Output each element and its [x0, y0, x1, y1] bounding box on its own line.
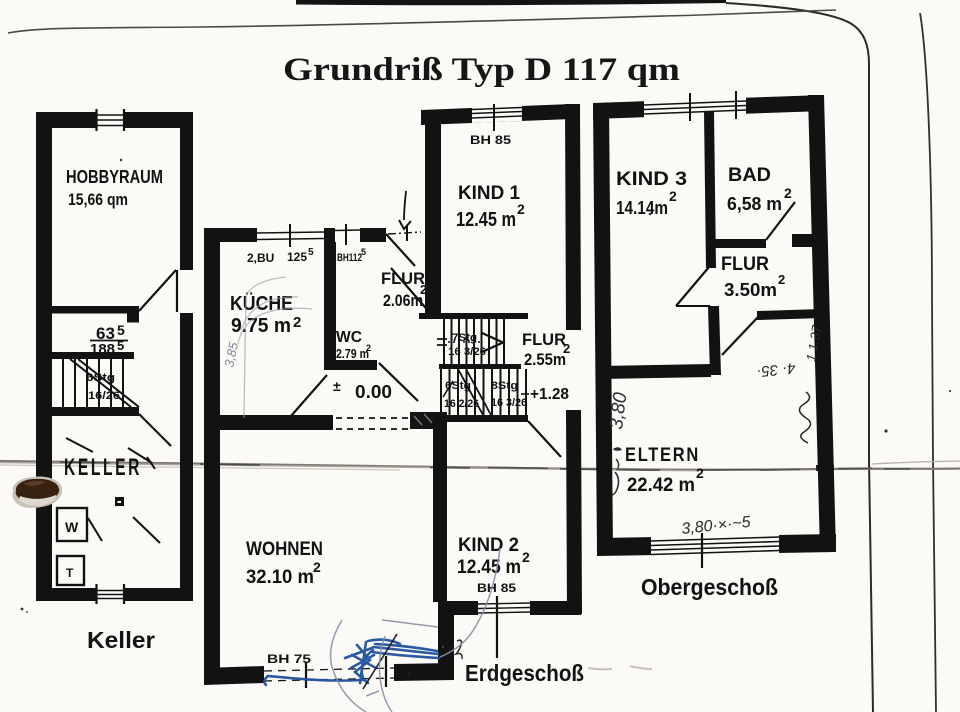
svg-text:HOBBYRAUM: HOBBYRAUM: [66, 167, 163, 187]
svg-text:BH 85: BH 85: [477, 581, 516, 595]
svg-text:8Stg: 8Stg: [491, 380, 518, 392]
svg-text:BH 75: BH 75: [267, 652, 311, 666]
svg-text:12.45 m: 12.45 m: [457, 557, 521, 578]
svg-text:KIND 3: KIND 3: [616, 169, 687, 190]
svg-text:16 2/26: 16 2/26: [444, 398, 479, 410]
svg-text:WOHNEN: WOHNEN: [246, 539, 323, 560]
svg-text:16/26: 16/26: [88, 390, 120, 402]
svg-text:5: 5: [117, 338, 124, 353]
svg-text:+1.28: +1.28: [530, 386, 569, 403]
svg-text:±: ±: [333, 378, 341, 394]
svg-text:2.79 m: 2.79 m: [336, 346, 369, 361]
svg-text:2: 2: [293, 314, 301, 331]
svg-text:2.55m: 2.55m: [524, 350, 566, 369]
svg-text:FLUR: FLUR: [381, 269, 425, 288]
svg-text:Obergeschoß: Obergeschoß: [641, 574, 778, 600]
svg-text:2: 2: [784, 185, 792, 201]
svg-text:6Stg: 6Stg: [445, 380, 471, 392]
svg-text:2: 2: [669, 188, 677, 204]
svg-text:KÜCHE: KÜCHE: [230, 292, 293, 315]
svg-text:2: 2: [522, 549, 530, 565]
svg-text:KIND 2: KIND 2: [458, 535, 519, 556]
svg-text:32.10 m: 32.10 m: [246, 567, 314, 588]
svg-text:5: 5: [361, 247, 366, 257]
svg-text:Grundriß Typ D 117 qm: Grundriß Typ D 117 qm: [283, 52, 680, 88]
svg-text:KIND 1: KIND 1: [458, 183, 520, 204]
svg-text:16 3/26: 16 3/26: [448, 346, 486, 358]
svg-text:16 3/26: 16 3/26: [491, 397, 527, 409]
svg-text:5: 5: [308, 247, 314, 258]
svg-text:T: T: [66, 566, 74, 580]
svg-text:3.50m: 3.50m: [724, 280, 777, 300]
svg-text:2: 2: [366, 343, 371, 353]
svg-text:15,66 qm: 15,66 qm: [68, 190, 128, 209]
svg-text:2: 2: [313, 559, 321, 575]
svg-text:2: 2: [517, 201, 525, 217]
svg-text:W: W: [65, 519, 79, 535]
svg-text:6,58 m: 6,58 m: [727, 194, 782, 214]
svg-text:WC: WC: [336, 329, 362, 346]
svg-text:14.14m: 14.14m: [616, 198, 668, 218]
svg-text:5: 5: [117, 322, 125, 338]
svg-text:Keller: Keller: [87, 627, 155, 653]
svg-text:ELTERN: ELTERN: [625, 445, 700, 466]
svg-text:BH112: BH112: [337, 252, 362, 264]
svg-text:7Stg: 7Stg: [452, 332, 477, 344]
svg-text:FLUR: FLUR: [721, 254, 769, 275]
svg-text:Erdgeschoß: Erdgeschoß: [465, 660, 584, 686]
svg-text:KELLER: KELLER: [64, 454, 142, 481]
svg-text:125: 125: [287, 250, 307, 264]
svg-text:2: 2: [563, 341, 570, 356]
svg-text:0.00: 0.00: [355, 382, 392, 402]
svg-text:FLUR: FLUR: [522, 330, 566, 349]
svg-text:2: 2: [696, 465, 704, 481]
svg-text:BH 85: BH 85: [470, 133, 511, 147]
svg-text:2: 2: [420, 282, 427, 297]
svg-text:9.75 m: 9.75 m: [231, 315, 291, 337]
svg-text:BAD: BAD: [728, 165, 771, 186]
svg-text:22.42 m: 22.42 m: [627, 475, 695, 496]
svg-text:2.06m: 2.06m: [383, 291, 423, 310]
svg-text:6Stg: 6Stg: [86, 372, 115, 384]
svg-text:12.45 m: 12.45 m: [456, 209, 516, 231]
svg-text:2: 2: [778, 272, 785, 287]
svg-text:2,BU: 2,BU: [247, 251, 274, 265]
